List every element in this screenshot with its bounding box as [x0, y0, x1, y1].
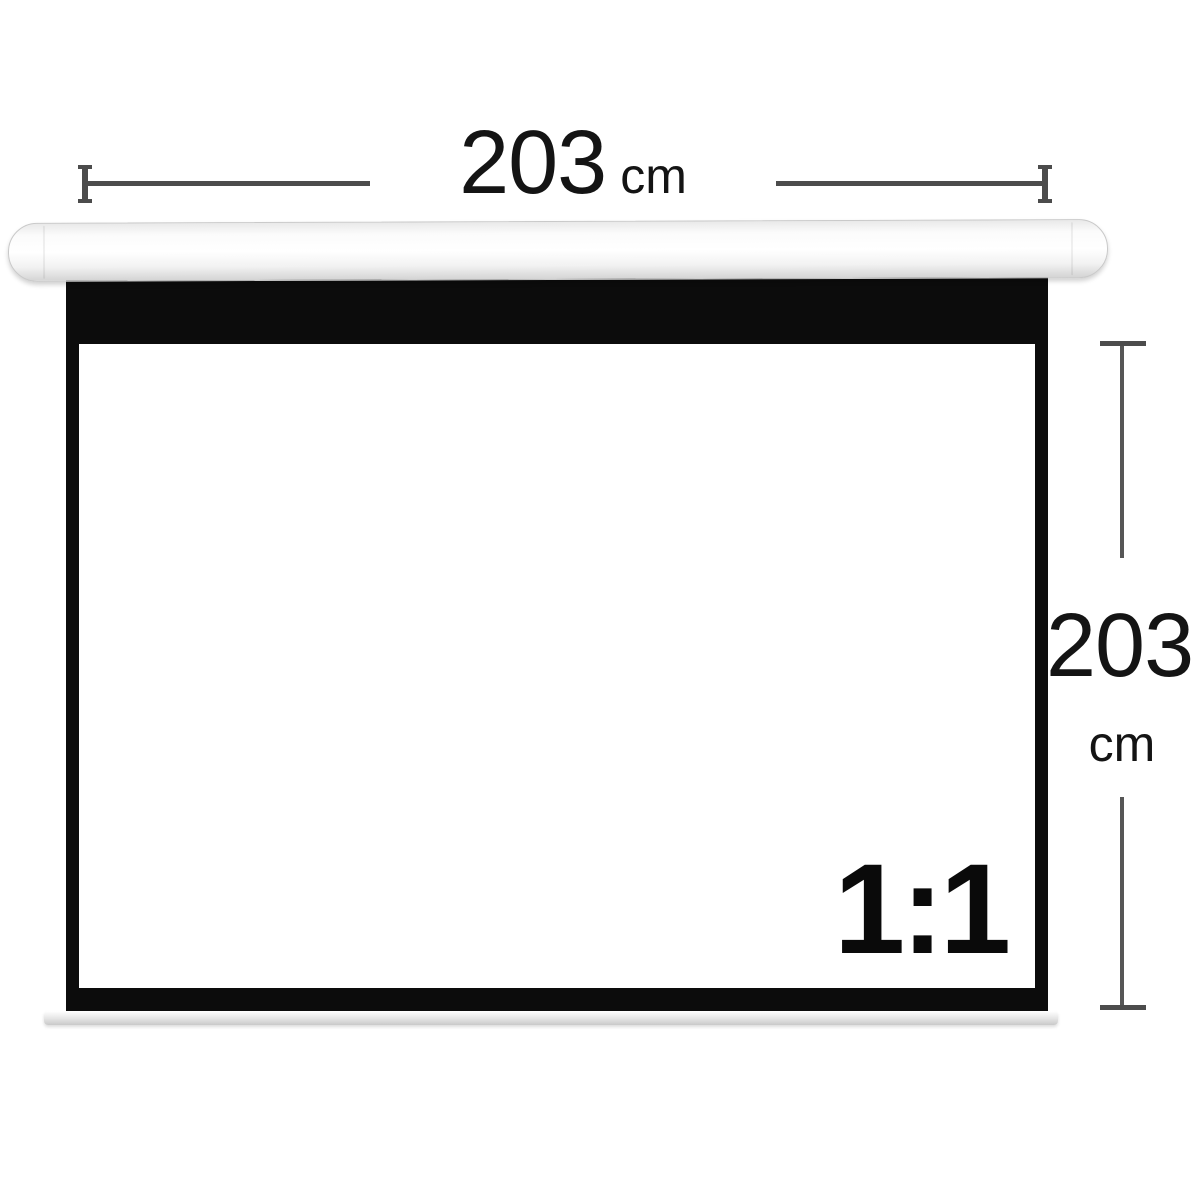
viewing-area: 1:1 — [79, 344, 1035, 988]
screen-frame: 1:1 — [66, 274, 1048, 1011]
height-value: 203 — [1046, 601, 1198, 691]
screen-housing — [8, 219, 1108, 282]
projector-screen-diagram: 203 cm 1:1 203 cm — [0, 0, 1200, 1200]
bottom-weight-bar — [44, 1011, 1058, 1025]
width-unit: cm — [620, 151, 687, 201]
height-dimension-bottom-tick — [1100, 1005, 1146, 1010]
height-dimension-line-upper — [1120, 346, 1124, 558]
width-dimension-label: 203 cm — [370, 118, 776, 208]
height-unit: cm — [1046, 719, 1198, 769]
height-dimension-line-lower — [1120, 797, 1124, 1007]
aspect-ratio-label: 1:1 — [834, 846, 1007, 974]
height-dimension-label: 203 cm — [1046, 601, 1198, 769]
width-dimension-right-tick — [1042, 166, 1048, 202]
width-value: 203 — [459, 118, 606, 208]
